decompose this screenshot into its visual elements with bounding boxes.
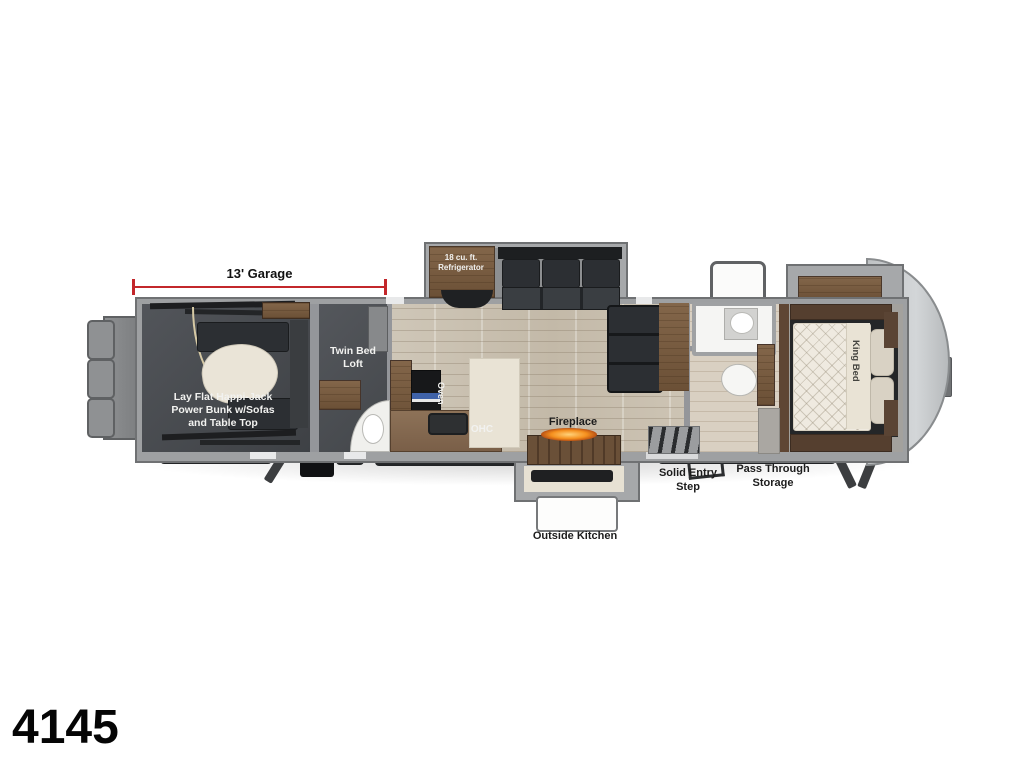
slide-sofa-cushion xyxy=(542,259,580,288)
wall-threshold xyxy=(344,452,366,459)
garage-bunk-label: Lay Flat Happi-Jack Power Bunk w/Sofas a… xyxy=(142,391,304,430)
oven-label: Oven xyxy=(436,374,446,412)
outside-kitchen-griddle xyxy=(531,470,613,482)
living-side-cabinet xyxy=(659,303,689,391)
bedroom-nightstand xyxy=(884,400,898,436)
garage-bunk-label-line1: Lay Flat Happi-Jack xyxy=(142,391,304,404)
solid-entry-step-label: Solid Entry Step xyxy=(642,466,734,495)
bedroom-landing-steps xyxy=(758,408,780,454)
outside-kitchen-label: Outside Kitchen xyxy=(518,530,632,542)
bathroom-vanity xyxy=(757,344,775,406)
ohc-label: OHC xyxy=(464,424,500,435)
garage-dimension-label: 13' Garage xyxy=(133,266,386,281)
garage-loft-wall xyxy=(310,304,319,452)
bath-bedroom-wall xyxy=(779,304,789,452)
ramp-hinge-cushion xyxy=(87,359,115,399)
wall-threshold xyxy=(386,297,404,304)
ramp-hinge-cushion xyxy=(87,398,115,438)
slide-sofa-cushion xyxy=(502,259,540,288)
solid-entry-step-label-line2: Step xyxy=(642,480,734,494)
slide-sofa-cushion xyxy=(582,259,620,288)
garage-shelf xyxy=(262,302,310,319)
garage-dimension-tick xyxy=(384,279,387,295)
loft-corner-desk xyxy=(319,380,361,410)
bathroom-sink xyxy=(730,312,754,334)
ramp-hinge-cushion xyxy=(87,320,115,360)
slide-sofa-seat xyxy=(502,287,620,310)
twin-bed-loft-label-line1: Twin Bed xyxy=(317,345,389,358)
floorplan-canvas: 13' Garage Lay Flat Happi-Jack Power Bun… xyxy=(0,0,1024,768)
outside-kitchen-panel xyxy=(536,496,618,532)
garage-dimension-tick xyxy=(132,279,135,295)
refrigerator-label: 18 cu. ft. Refrigerator xyxy=(428,253,494,274)
fireplace-label: Fireplace xyxy=(525,416,621,428)
garage-bunk-label-line2: Power Bunk w/Sofas xyxy=(142,404,304,417)
twin-bed-loft-label-line2: Loft xyxy=(317,358,389,371)
garage-bunk-label-line3: and Table Top xyxy=(142,417,304,430)
garage-dimension-line xyxy=(133,286,386,288)
entry-steps xyxy=(648,426,700,454)
refrigerator-label-line2: Refrigerator xyxy=(428,263,494,273)
king-bed-label: King Bed xyxy=(850,340,861,415)
pass-through-storage-label-line1: Pass Through xyxy=(725,462,821,476)
bedroom-wardrobe xyxy=(790,304,892,320)
twin-bed-loft-label: Twin Bed Loft xyxy=(317,345,389,371)
refrigerator-label-line1: 18 cu. ft. xyxy=(428,253,494,263)
model-number: 4145 xyxy=(12,700,119,755)
fireplace-flame xyxy=(541,428,597,441)
bedroom-wardrobe xyxy=(790,434,892,452)
bedroom-nightstand xyxy=(884,312,898,348)
slide-sofa-back xyxy=(498,247,622,259)
wall-threshold xyxy=(250,452,276,459)
theater-sofa xyxy=(607,305,663,393)
solid-entry-step-label-line1: Solid Entry xyxy=(642,466,734,480)
kitchen-sink xyxy=(428,413,468,435)
wall-threshold xyxy=(636,297,652,304)
loft-toilet xyxy=(362,414,384,444)
garage-bunk-frame xyxy=(200,440,300,445)
pass-through-storage-label: Pass Through Storage xyxy=(725,462,821,491)
pass-through-storage-label-line2: Storage xyxy=(725,476,821,490)
